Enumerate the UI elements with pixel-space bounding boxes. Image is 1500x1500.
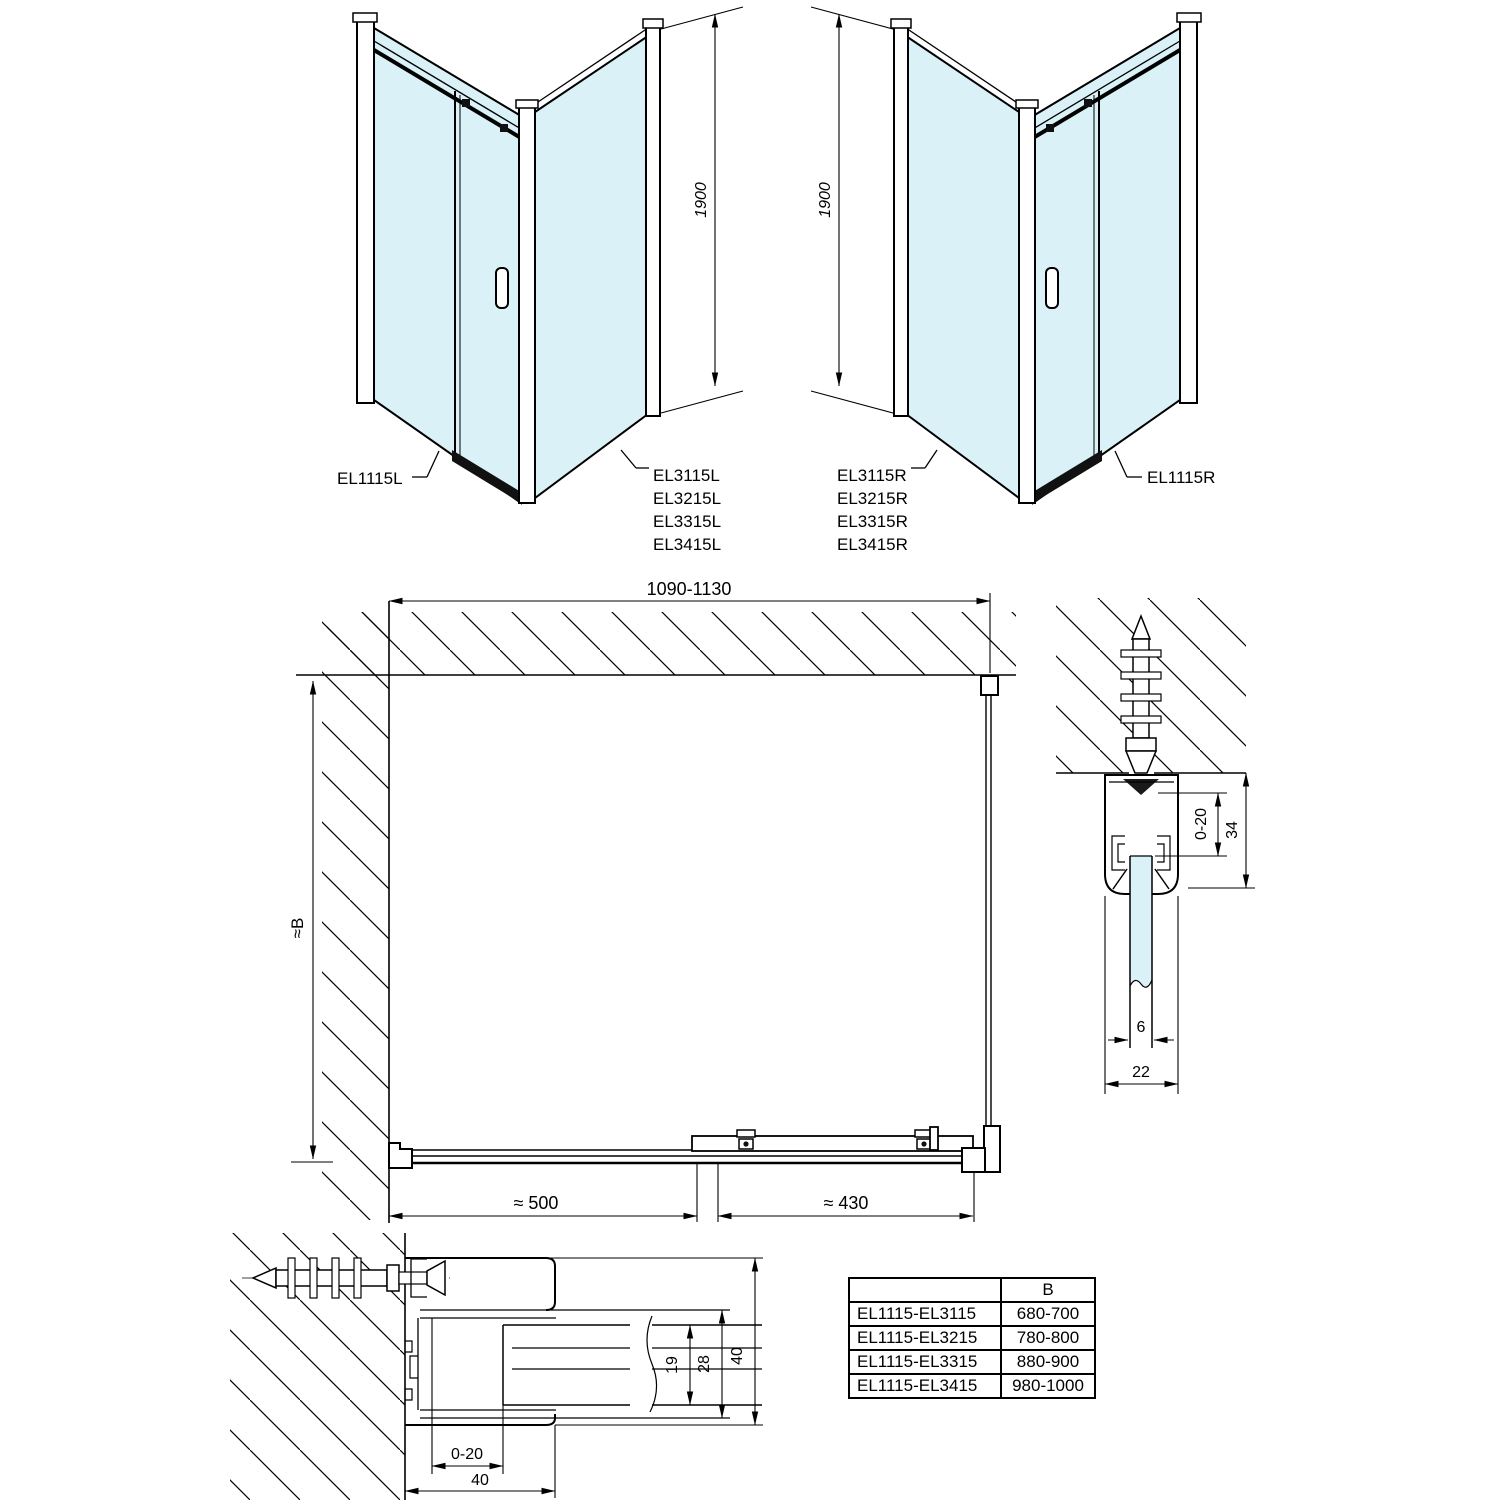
iso-right-height-dim: 1900 bbox=[817, 182, 834, 218]
profile-section-adjust-dim: 0-20 bbox=[451, 1446, 483, 1463]
size-table-header-model bbox=[850, 1279, 1000, 1301]
profile-bottom-arm bbox=[405, 1414, 555, 1425]
iso-right-side-label: EL3115R bbox=[837, 466, 907, 485]
size-table-b-range: 680-700 bbox=[1000, 1301, 1094, 1325]
iso-left-height-dim: 1900 bbox=[693, 182, 710, 218]
size-table-model: EL1115-EL3115 bbox=[850, 1301, 1000, 1325]
plan-wall-profile bbox=[389, 1143, 412, 1168]
plan-depth-dim: ≈B bbox=[288, 918, 307, 939]
iso-right-door-glass bbox=[1033, 28, 1180, 503]
iso-left-side-label: EL3115L bbox=[653, 466, 720, 485]
iso-left-side-label: EL3315L bbox=[653, 512, 721, 531]
iso-left-side-label: EL3215L bbox=[653, 489, 721, 508]
iso-left-door-label: EL1115L bbox=[337, 469, 403, 488]
iso-right-side-label: EL3215R bbox=[837, 489, 908, 508]
iso-left-door-glass bbox=[374, 28, 521, 503]
iso-right-side-label: EL3315R bbox=[837, 512, 908, 531]
size-table-b-range: 980-1000 bbox=[1000, 1373, 1094, 1397]
plan-fixed-panel-dim: ≈ 500 bbox=[514, 1193, 559, 1213]
iso-right-side-frame bbox=[894, 26, 908, 416]
size-table-model: EL1115-EL3315 bbox=[850, 1349, 1000, 1373]
wall-profile-section-drawing: 0-20 34 6 22 bbox=[1056, 598, 1255, 1094]
iso-right-side-panel-glass bbox=[906, 36, 1019, 498]
size-table-model: EL1115-EL3215 bbox=[850, 1325, 1000, 1349]
profile-section-depth-dim: 40 bbox=[471, 1472, 489, 1489]
iso-right-roller bbox=[1046, 124, 1054, 132]
plan-corner-profile bbox=[984, 1126, 1000, 1172]
size-table-model: EL1115-EL3415 bbox=[850, 1373, 1000, 1397]
plan-top-wall-hatch bbox=[327, 612, 1016, 675]
iso-right-door-label: EL1115R bbox=[1147, 468, 1215, 487]
profile-height-dim: 40 bbox=[729, 1347, 746, 1365]
size-table: B EL1115-EL3115 680-700 EL1115-EL3215 78… bbox=[848, 1277, 1096, 1399]
iso-right-side-label: EL3415R bbox=[837, 535, 908, 554]
plan-corner-foot bbox=[962, 1148, 985, 1172]
iso-left-roller bbox=[462, 99, 470, 107]
glass-panel-edge bbox=[1130, 856, 1152, 987]
plan-wall-bracket bbox=[981, 676, 998, 695]
iso-right-wall-frame bbox=[1180, 20, 1197, 403]
plan-width-dim: 1090-1130 bbox=[647, 579, 732, 599]
size-table-b-range: 780-800 bbox=[1000, 1325, 1094, 1349]
iso-right-corner-post bbox=[1019, 106, 1035, 503]
wall-section-depth-dim: 34 bbox=[1224, 821, 1241, 839]
plan-door-stop bbox=[930, 1127, 938, 1150]
iso-left-wall-frame bbox=[357, 20, 374, 403]
iso-left-side-panel-glass bbox=[535, 36, 648, 498]
iso-right-door-handle bbox=[1046, 268, 1058, 308]
iso-left-roller bbox=[500, 124, 508, 132]
iso-left-side-label: EL3415L bbox=[653, 535, 721, 554]
iso-left-side-frame bbox=[646, 26, 660, 416]
wall-section-adjust-dim: 0-20 bbox=[1193, 808, 1210, 840]
technical-drawing-canvas: 1900 EL1115L EL3115L EL3215L EL3315L EL3… bbox=[0, 0, 1500, 1500]
wall-section-width-dim: 22 bbox=[1132, 1064, 1150, 1081]
iso-left-door-handle bbox=[496, 268, 508, 308]
panel-thickness-dim: 19 bbox=[664, 1356, 681, 1374]
anchor-screw-head bbox=[427, 1261, 445, 1295]
iso-right-drawing: 1900 EL1115R EL3115R EL3215R EL3315R EL3… bbox=[811, 7, 1215, 554]
iso-left-drawing: 1900 EL1115L EL3115L EL3215L EL3315L EL3… bbox=[337, 7, 743, 554]
pocket-depth-dim: 28 bbox=[696, 1355, 713, 1373]
size-table-header-b: B bbox=[1000, 1279, 1094, 1301]
plan-roller bbox=[921, 1141, 926, 1146]
profile-section-drawing: 0-20 40 19 28 40 bbox=[230, 1233, 763, 1500]
plan-view-drawing: 1090-1130 ≈B ≈ 500 ≈ 430 bbox=[288, 579, 1016, 1223]
plan-left-wall-hatch bbox=[322, 612, 389, 1220]
glass-thickness-dim: 6 bbox=[1137, 1019, 1146, 1036]
panel-break bbox=[630, 1316, 652, 1412]
iso-right-roller bbox=[1084, 99, 1092, 107]
iso-left-corner-post bbox=[519, 106, 535, 503]
size-table-b-range: 880-900 bbox=[1000, 1349, 1094, 1373]
plan-door-dim: ≈ 430 bbox=[824, 1193, 869, 1213]
plan-roller bbox=[743, 1141, 748, 1146]
